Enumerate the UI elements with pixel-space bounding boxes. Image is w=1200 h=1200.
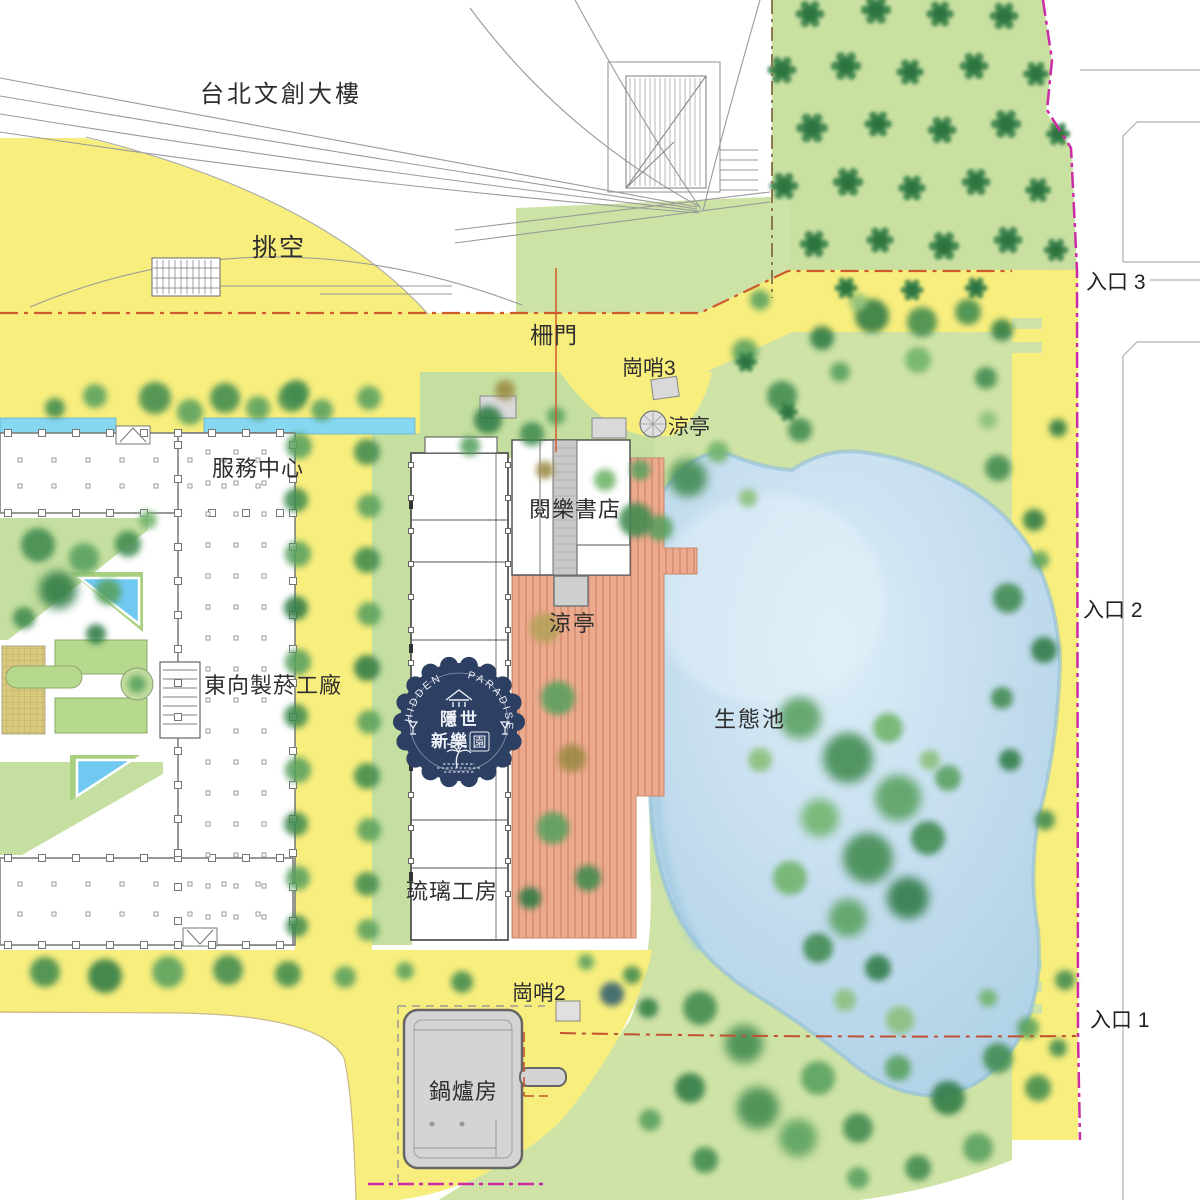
- hidden-paradise-logo: HIDDEN PARADISE 隱世 新樂 園: [389, 652, 529, 792]
- label-gate: 柵門: [530, 316, 578, 350]
- pavilion-deck-structure: [554, 576, 588, 606]
- paved-grid-court: [2, 646, 45, 734]
- tree-grove-lawn: [772, 0, 1077, 304]
- logo-seal-char: 園: [473, 734, 487, 750]
- label-void-space: 挑空: [252, 228, 306, 264]
- label-sentry2: 崗哨2: [512, 977, 566, 1007]
- south-colonnade-building: [0, 858, 293, 945]
- label-taipei-new-horizon-building: 台北文創大樓: [200, 74, 362, 109]
- label-boiler-room: 鍋爐房: [429, 1074, 498, 1106]
- logo-line2: 新樂: [431, 731, 469, 751]
- label-pavilion-north: 涼亭: [668, 411, 710, 441]
- label-entrance1: 入口 1: [1090, 1004, 1150, 1034]
- label-eco-pond: 生態池: [714, 702, 786, 734]
- pavilion-north-structure: [640, 411, 666, 437]
- site-plan-canvas: [0, 0, 1200, 1200]
- hedge-oval: [6, 666, 82, 688]
- site-plan: 台北文創大樓 挑空 柵門 崗哨3 涼亭 服務中心 閱樂書店 涼亭 東向製菸工廠 …: [0, 0, 1200, 1200]
- label-bookstore: 閱樂書店: [529, 492, 621, 524]
- label-entrance3: 入口 3: [1086, 266, 1146, 296]
- water-channel: [0, 418, 415, 434]
- label-service-center: 服務中心: [212, 451, 304, 483]
- logo-line1: 隱世: [440, 709, 480, 729]
- label-pavilion-deck: 涼亭: [549, 606, 597, 638]
- stair-core: [160, 662, 200, 738]
- label-sentry3: 崗哨3: [622, 352, 676, 382]
- label-tobacco-factory: 東向製菸工廠: [204, 668, 342, 700]
- label-glass-studio: 琉璃工房: [406, 874, 498, 906]
- label-entrance2: 入口 2: [1083, 594, 1143, 624]
